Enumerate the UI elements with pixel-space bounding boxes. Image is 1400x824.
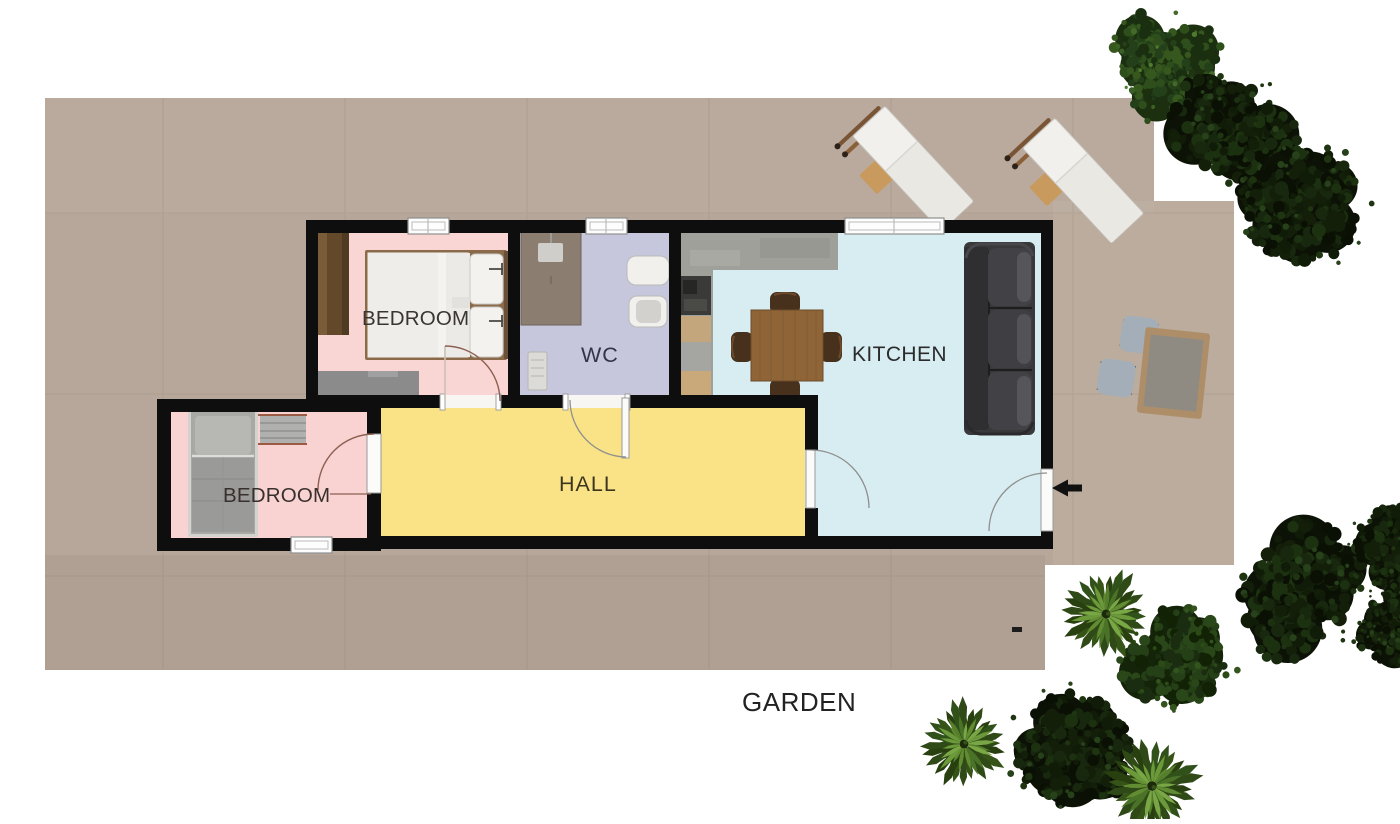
svg-text:KITCHEN: KITCHEN — [852, 343, 947, 366]
svg-text:BEDROOM: BEDROOM — [362, 307, 469, 330]
svg-text:WC: WC — [581, 343, 619, 367]
svg-text:GARDEN: GARDEN — [742, 687, 856, 717]
svg-text:BEDROOM: BEDROOM — [223, 484, 330, 507]
svg-text:HALL: HALL — [559, 472, 617, 496]
